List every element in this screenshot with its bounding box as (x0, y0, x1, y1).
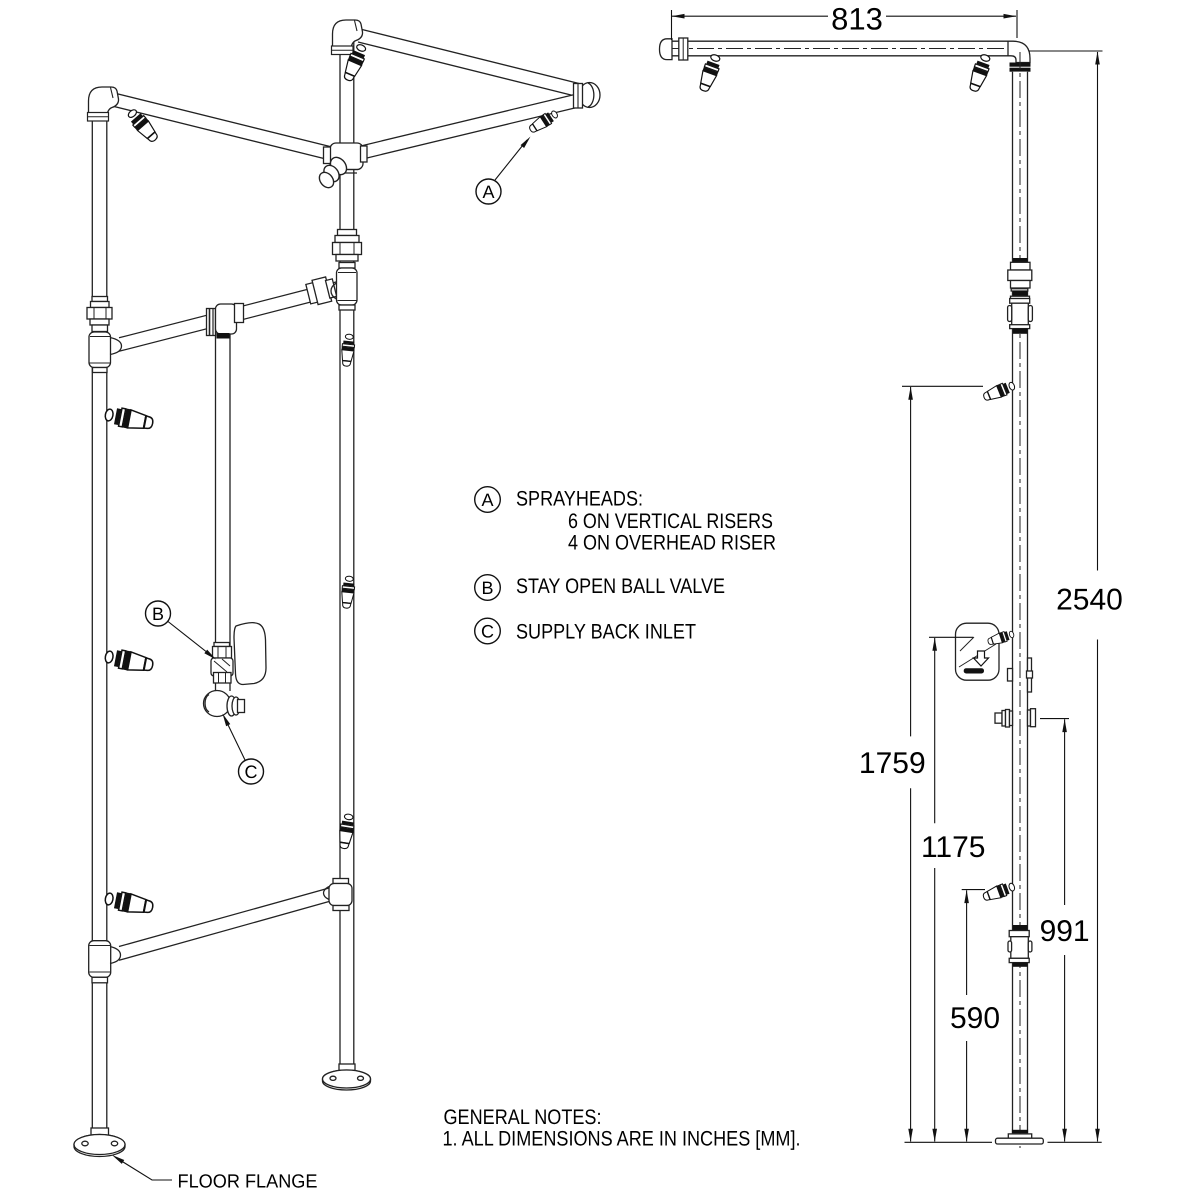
svg-text:1175: 1175 (921, 831, 986, 864)
svg-text:6 ON VERTICAL RISERS: 6 ON VERTICAL RISERS (568, 510, 773, 533)
svg-text:FLOOR FLANGE: FLOOR FLANGE (178, 1172, 318, 1193)
svg-text:991: 991 (1040, 915, 1090, 948)
svg-text:SUPPLY BACK INLET: SUPPLY BACK INLET (516, 621, 696, 644)
svg-text:1. ALL DIMENSIONS ARE IN INCHE: 1. ALL DIMENSIONS ARE IN INCHES [MM]. (443, 1128, 801, 1151)
svg-text:2540: 2540 (1056, 584, 1123, 617)
svg-text:813: 813 (831, 2, 883, 37)
svg-text:B: B (481, 578, 493, 598)
svg-text:C: C (481, 622, 494, 642)
svg-text:SPRAYHEADS:: SPRAYHEADS: (516, 488, 643, 511)
svg-text:590: 590 (950, 1002, 1000, 1035)
svg-text:A: A (482, 182, 494, 202)
svg-text:B: B (152, 604, 164, 624)
svg-text:GENERAL NOTES:: GENERAL NOTES: (444, 1106, 602, 1129)
svg-text:A: A (481, 490, 493, 510)
svg-text:STAY OPEN BALL VALVE: STAY OPEN BALL VALVE (516, 575, 725, 598)
svg-text:C: C (245, 762, 258, 782)
svg-text:4 ON OVERHEAD RISER: 4 ON OVERHEAD RISER (568, 532, 776, 555)
svg-text:1759: 1759 (859, 747, 926, 780)
